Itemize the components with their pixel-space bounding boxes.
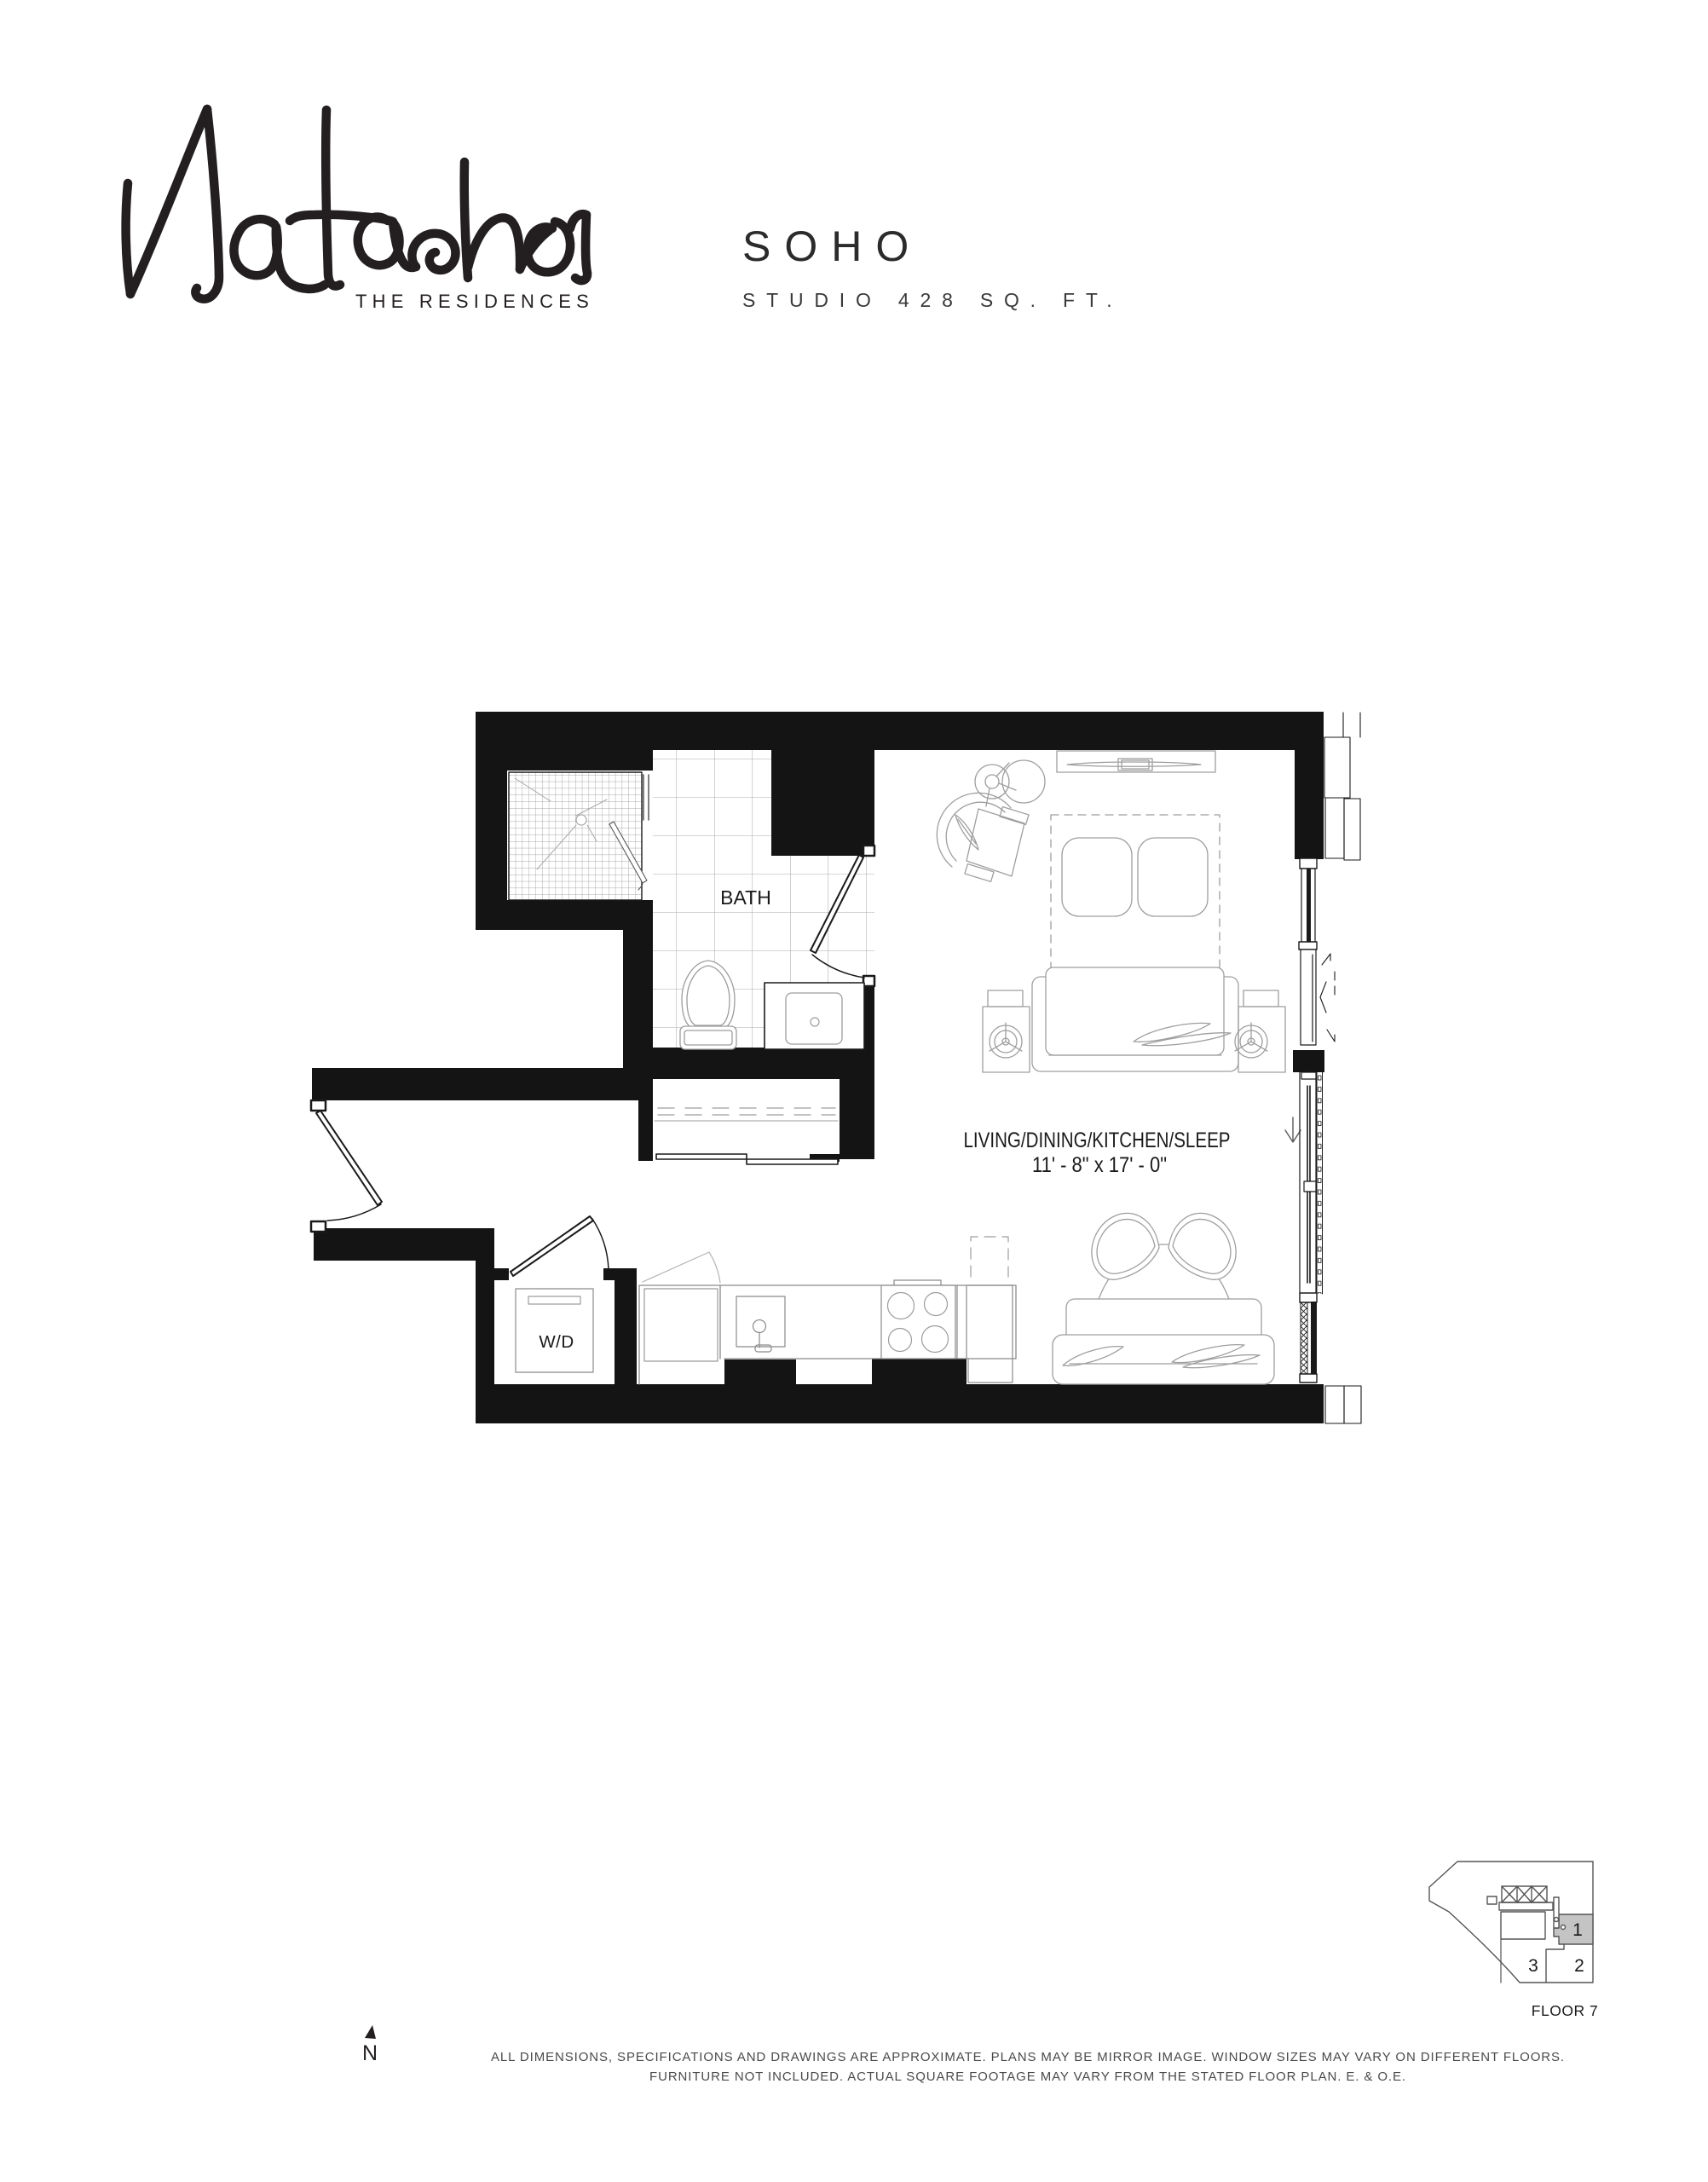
svg-text:ALL DIMENSIONS, SPECIFICATIONS: ALL DIMENSIONS, SPECIFICATIONS AND DRAWI… bbox=[491, 2050, 1565, 2064]
svg-text:N: N bbox=[362, 2041, 378, 2065]
svg-text:W/D: W/D bbox=[539, 1332, 574, 1352]
svg-text:FURNITURE NOT INCLUDED. ACTUAL: FURNITURE NOT INCLUDED. ACTUAL SQUARE FO… bbox=[649, 2069, 1406, 2084]
svg-text:3: 3 bbox=[1528, 1956, 1538, 1976]
svg-text:11' - 8" x 17' - 0": 11' - 8" x 17' - 0" bbox=[1032, 1153, 1167, 1177]
svg-text:2: 2 bbox=[1574, 1956, 1584, 1976]
svg-text:LIVING/DINING/KITCHEN/SLEEP: LIVING/DINING/KITCHEN/SLEEP bbox=[964, 1129, 1231, 1152]
svg-text:1: 1 bbox=[1572, 1920, 1583, 1940]
svg-text:FLOOR 7: FLOOR 7 bbox=[1532, 2002, 1598, 2019]
svg-text:BATH: BATH bbox=[720, 886, 771, 909]
